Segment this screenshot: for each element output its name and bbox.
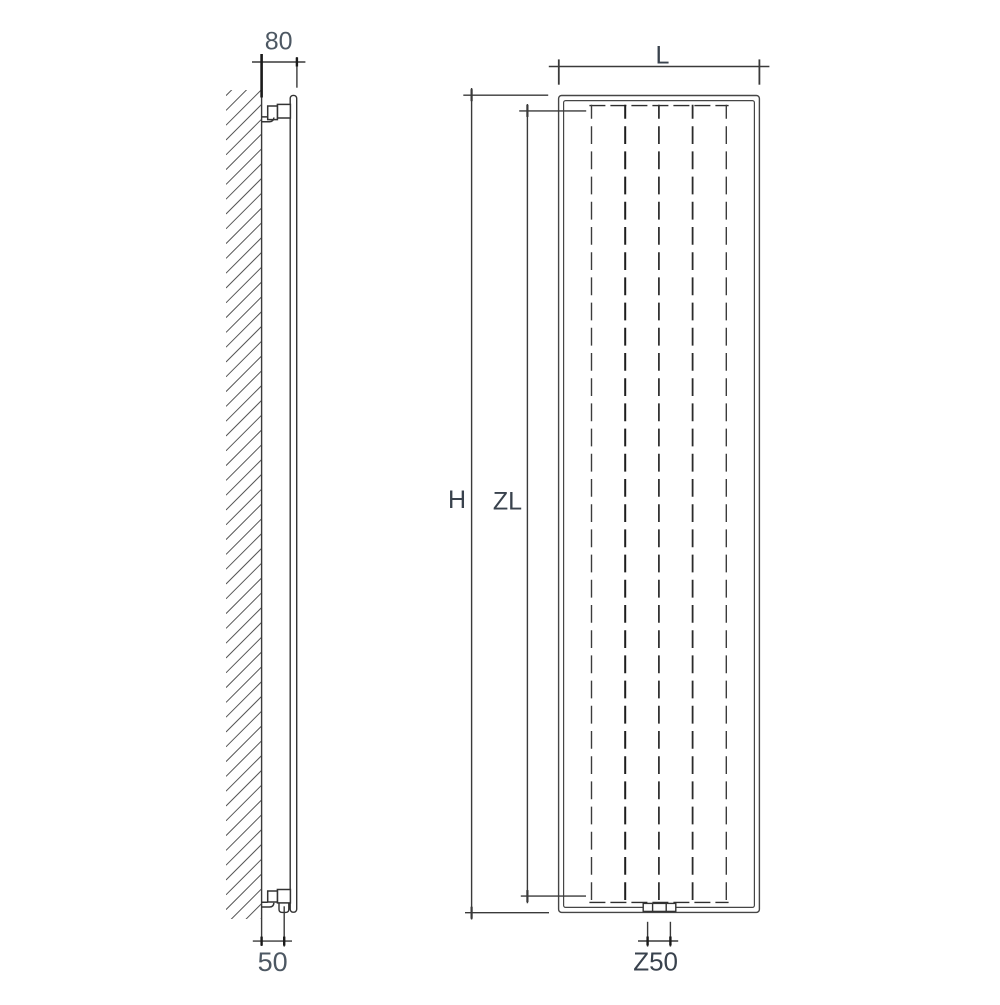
svg-text:Z50: Z50: [633, 946, 678, 976]
svg-text:50: 50: [258, 947, 288, 977]
svg-text:L: L: [656, 42, 670, 70]
svg-text:ZL: ZL: [493, 488, 522, 516]
svg-text:80: 80: [265, 28, 293, 56]
svg-text:H: H: [448, 486, 466, 514]
